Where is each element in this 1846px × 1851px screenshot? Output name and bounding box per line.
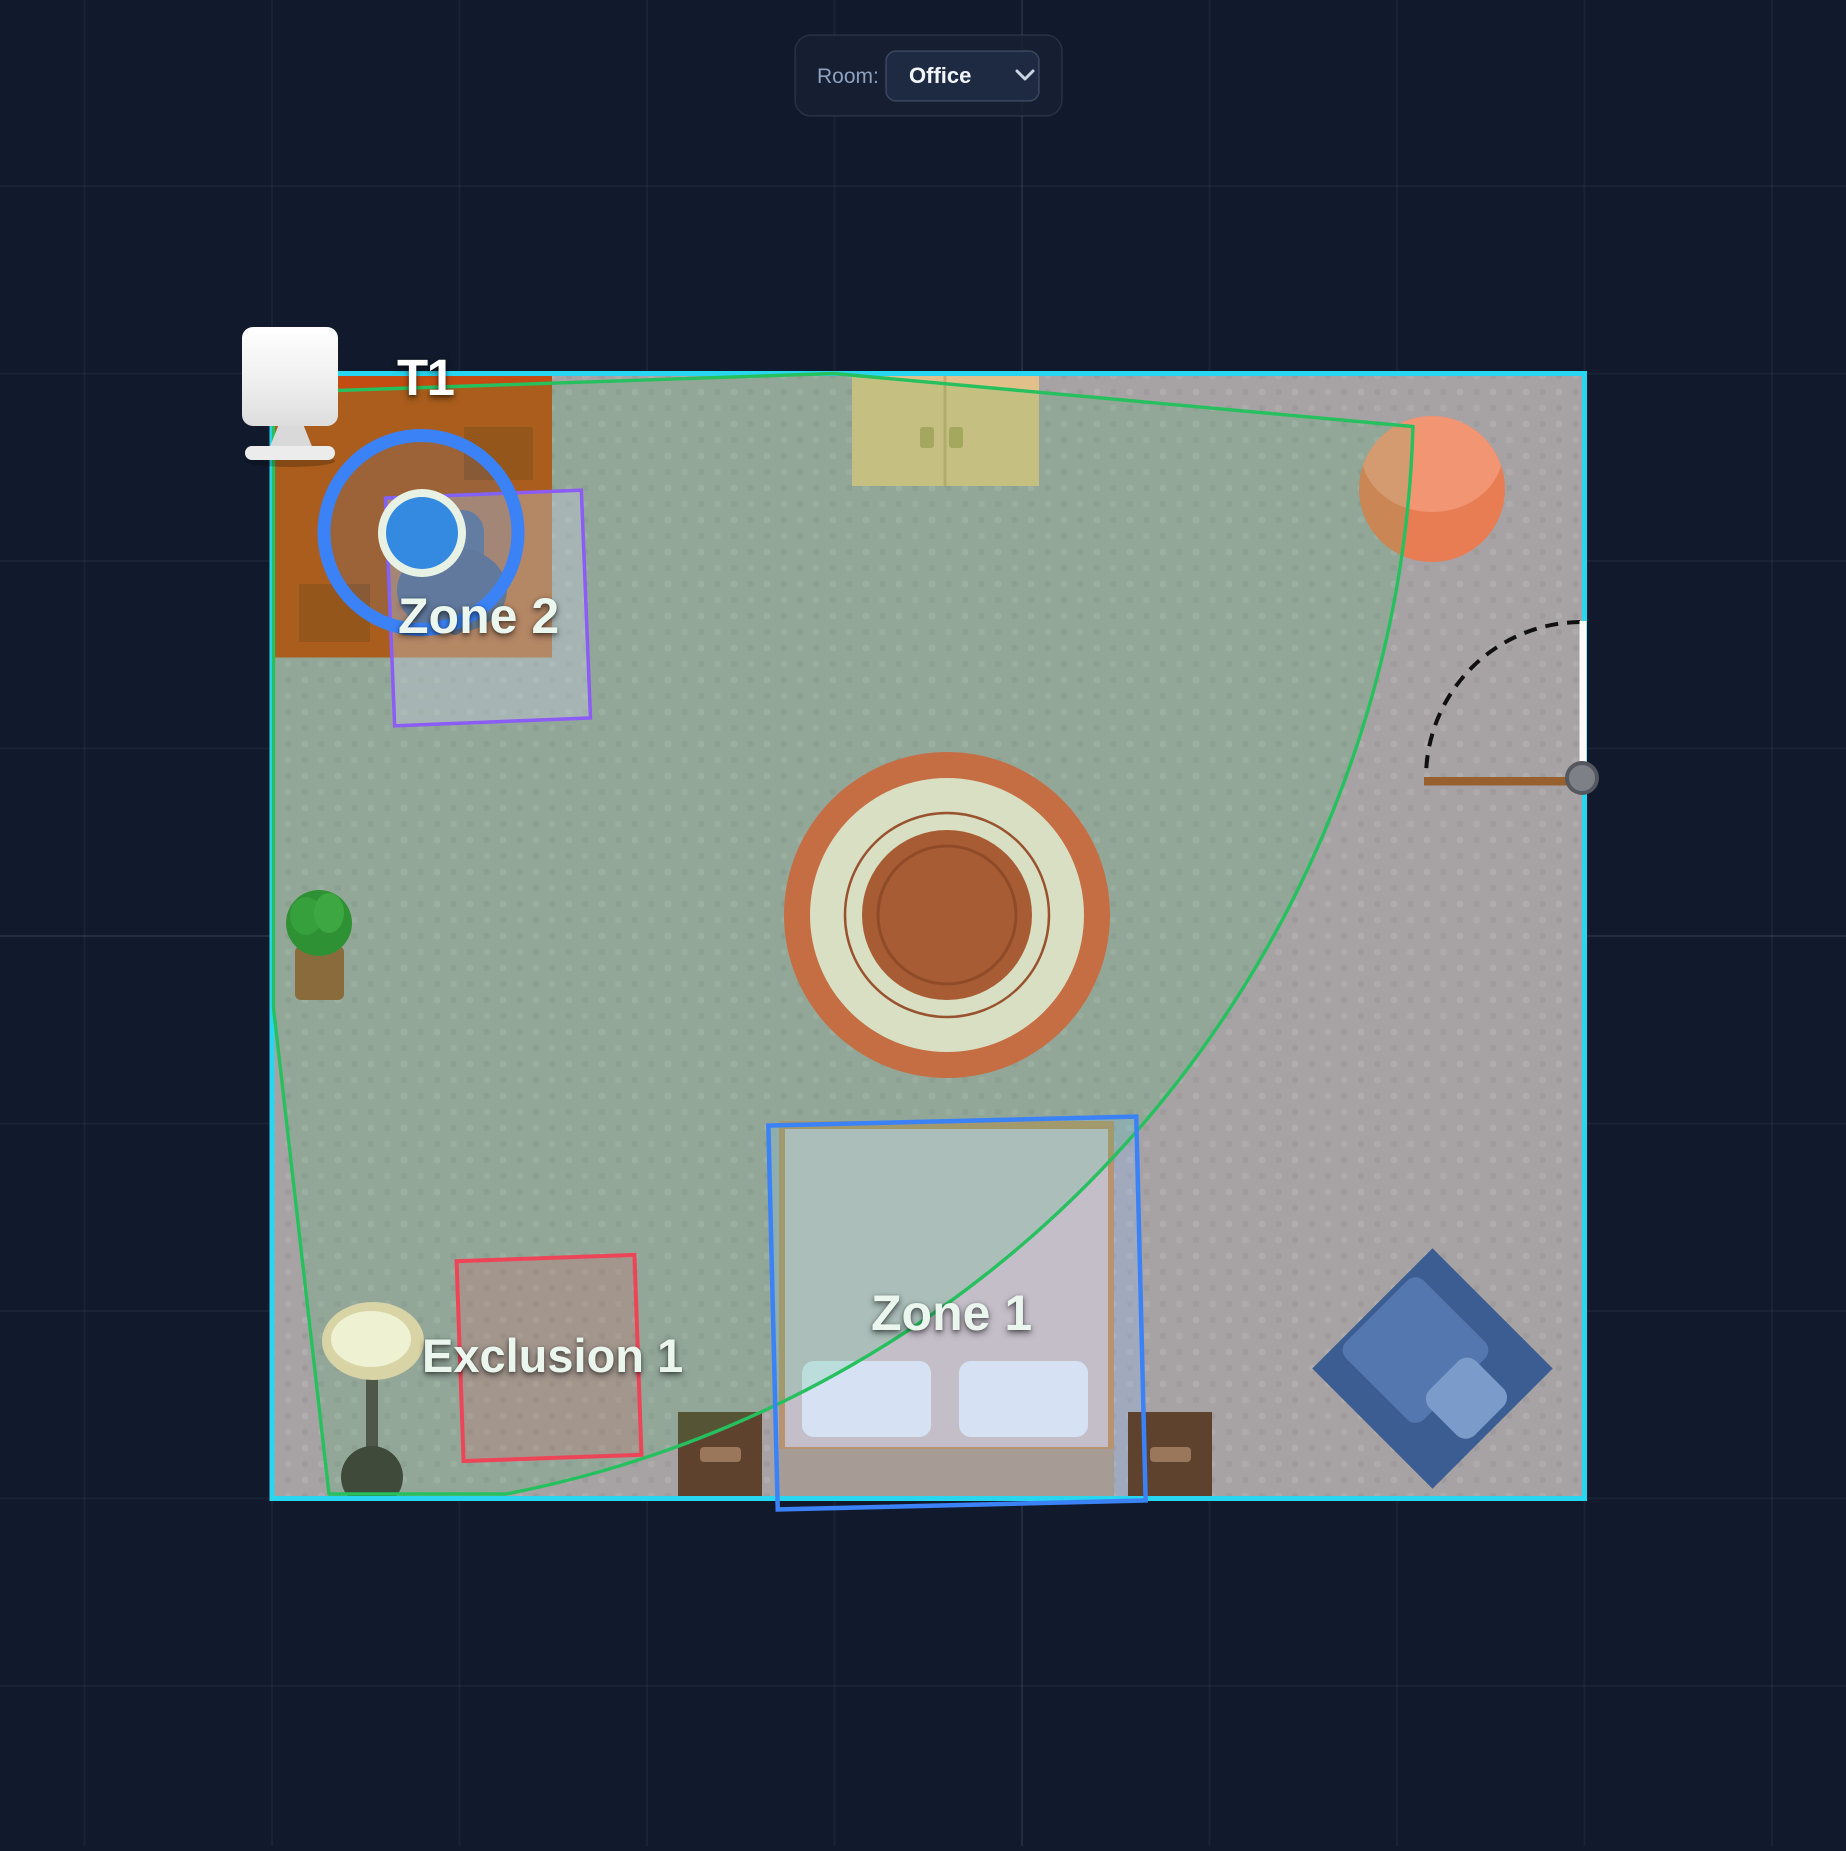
- svg-text:Zone 2: Zone 2: [398, 588, 559, 644]
- svg-text:Zone 1: Zone 1: [871, 1285, 1032, 1341]
- svg-text:T1: T1: [397, 349, 454, 406]
- svg-text:Office: Office: [909, 63, 971, 88]
- svg-text:Room:: Room:: [817, 65, 879, 88]
- svg-text:Exclusion 1: Exclusion 1: [422, 1329, 683, 1382]
